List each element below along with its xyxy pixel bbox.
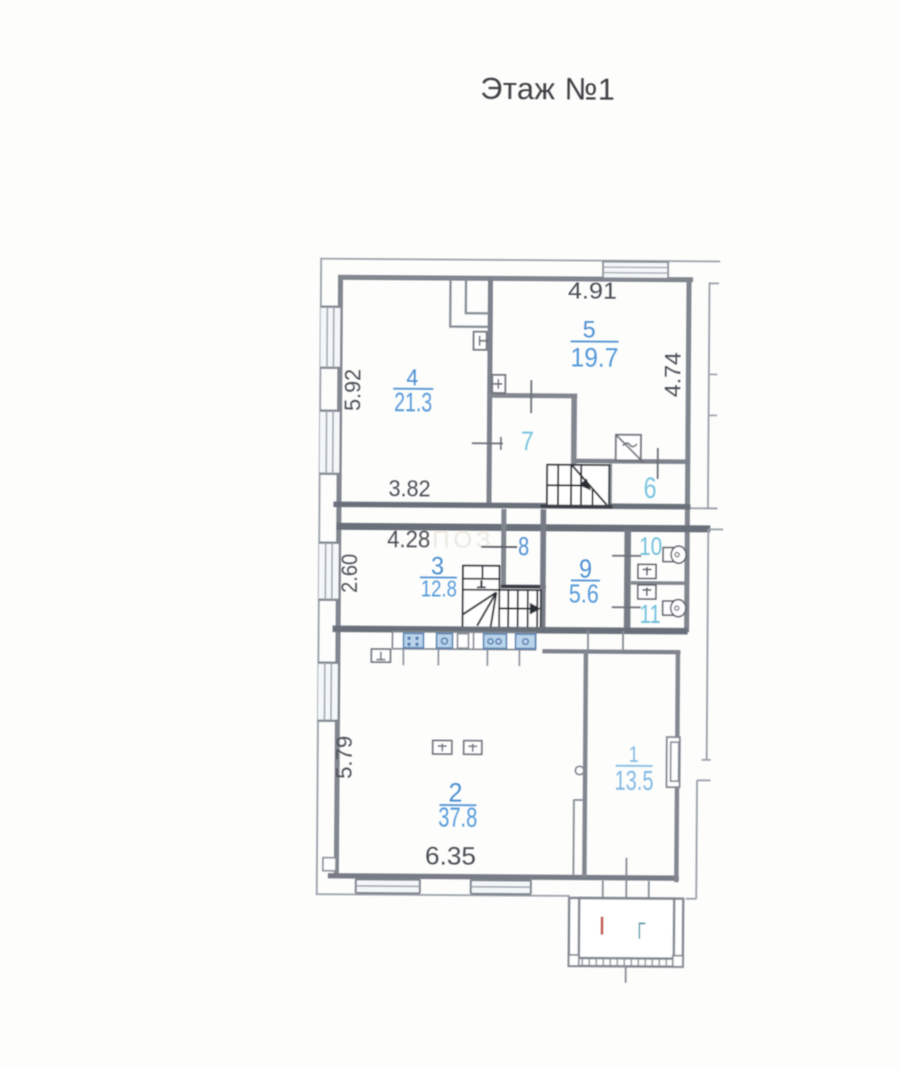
svg-text:Этаж №1: Этаж №1 (480, 71, 615, 107)
svg-text:37.8: 37.8 (438, 802, 477, 833)
svg-text:4.28: 4.28 (387, 526, 430, 553)
svg-text:Г: Г (637, 918, 645, 945)
svg-text:5.92: 5.92 (340, 369, 365, 411)
svg-text:13.5: 13.5 (614, 765, 653, 796)
svg-text:8: 8 (518, 531, 529, 561)
svg-text:5: 5 (583, 317, 596, 344)
svg-text:7: 7 (521, 426, 534, 456)
svg-text:10: 10 (639, 533, 662, 561)
svg-text:19.7: 19.7 (570, 342, 618, 372)
svg-text:6.35: 6.35 (425, 842, 476, 870)
svg-text:I: I (599, 911, 604, 941)
svg-text:3.82: 3.82 (388, 475, 430, 501)
svg-text:5.6: 5.6 (569, 578, 599, 608)
svg-text:21.3: 21.3 (394, 387, 432, 417)
svg-text:6: 6 (643, 472, 656, 505)
svg-text:4.91: 4.91 (568, 277, 617, 303)
svg-text:5.79: 5.79 (332, 736, 357, 779)
svg-text:1: 1 (629, 742, 639, 767)
svg-text:11: 11 (640, 599, 661, 629)
svg-text:2.60: 2.60 (337, 554, 362, 593)
svg-text:4.74: 4.74 (660, 352, 685, 397)
svg-text:12.8: 12.8 (421, 575, 457, 601)
